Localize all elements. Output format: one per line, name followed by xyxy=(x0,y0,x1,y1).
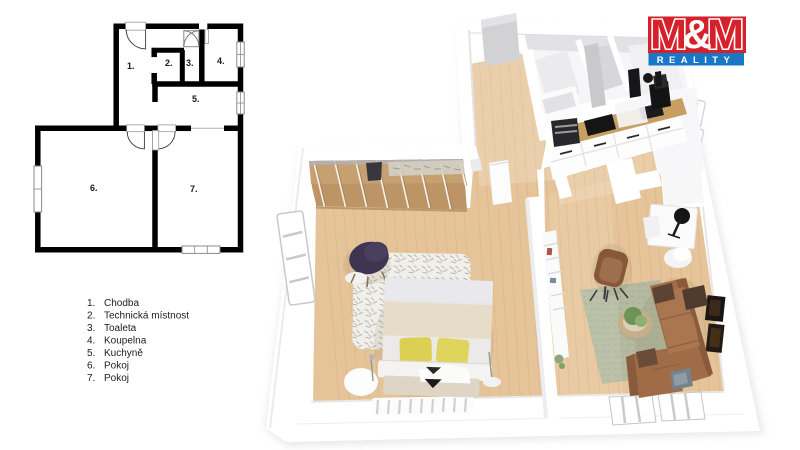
svg-text:M: M xyxy=(707,11,744,58)
svg-text:Chodba: Chodba xyxy=(104,298,139,309)
svg-text:1.: 1. xyxy=(87,298,95,309)
svg-text:Koupelna: Koupelna xyxy=(104,336,147,347)
svg-text:4.: 4. xyxy=(87,336,95,347)
svg-text:4.: 4. xyxy=(217,56,225,66)
svg-text:6.: 6. xyxy=(87,361,95,372)
svg-text:&: & xyxy=(682,11,712,57)
svg-text:5.: 5. xyxy=(87,348,95,359)
svg-text:6.: 6. xyxy=(90,183,98,193)
svg-text:Pokoj: Pokoj xyxy=(104,373,129,384)
svg-text:REALITY: REALITY xyxy=(657,55,735,66)
svg-text:2.: 2. xyxy=(165,58,173,68)
svg-text:Kuchyně: Kuchyně xyxy=(104,348,143,359)
svg-text:3.: 3. xyxy=(87,323,95,334)
svg-text:Technická místnost: Technická místnost xyxy=(104,311,189,322)
svg-text:7.: 7. xyxy=(87,373,95,384)
svg-text:5.: 5. xyxy=(192,94,200,104)
svg-text:3.: 3. xyxy=(186,58,194,68)
svg-text:Pokoj: Pokoj xyxy=(104,361,129,372)
svg-text:7.: 7. xyxy=(190,184,198,194)
svg-text:2.: 2. xyxy=(87,311,95,322)
svg-text:1.: 1. xyxy=(127,61,135,71)
svg-text:Toaleta: Toaleta xyxy=(104,323,137,334)
